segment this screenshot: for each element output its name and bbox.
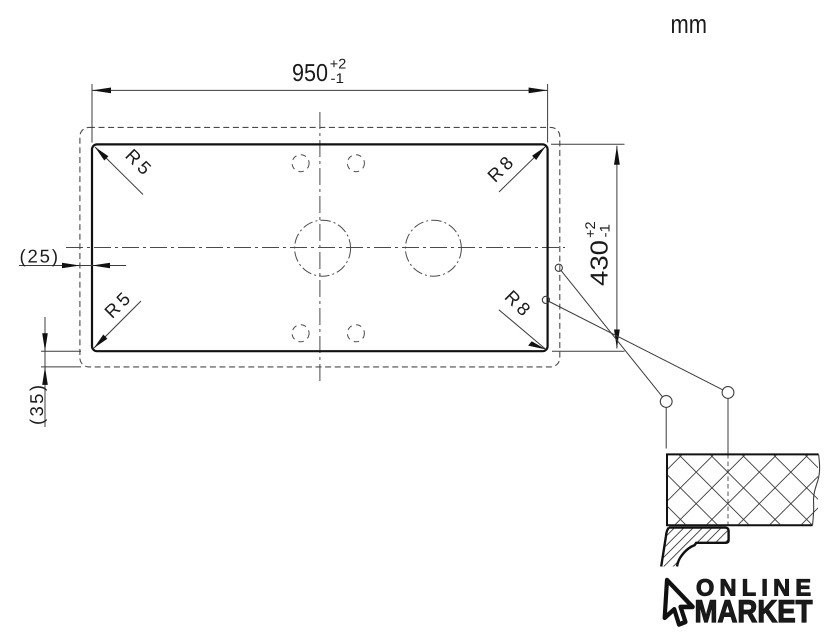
svg-text:+2: +2: [582, 221, 598, 238]
svg-text:MARKET: MARKET: [695, 593, 813, 629]
svg-text:mm: mm: [671, 9, 708, 39]
svg-text:950: 950: [292, 60, 328, 87]
svg-text:+2: +2: [330, 56, 347, 72]
svg-text:-1: -1: [331, 70, 345, 86]
svg-text:-1: -1: [597, 224, 613, 238]
svg-text:430: 430: [586, 240, 613, 286]
svg-text:(25): (25): [20, 246, 59, 267]
